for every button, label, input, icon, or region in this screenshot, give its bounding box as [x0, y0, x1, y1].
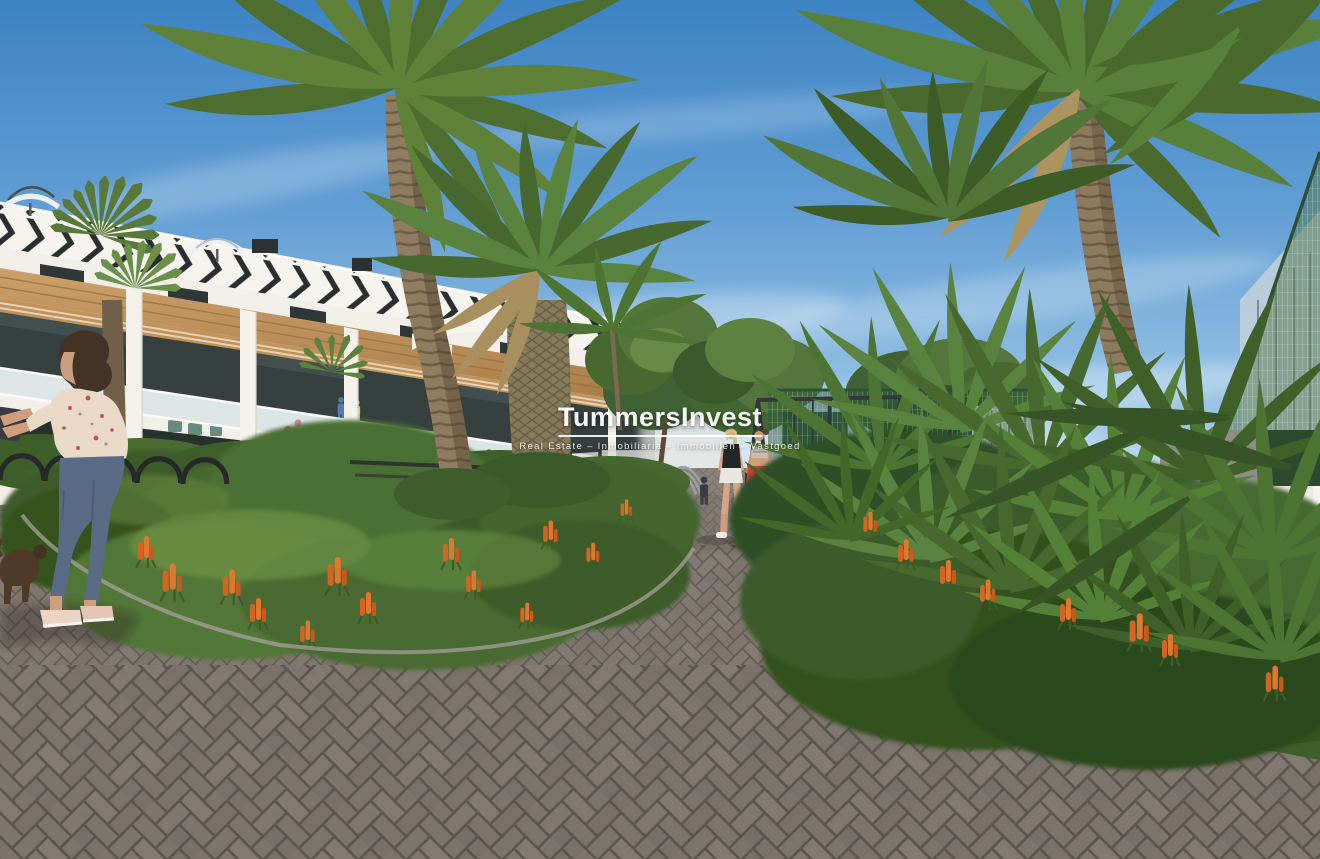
rendering-photo: TummersInvest Real Estate – Inmobiliaria… — [0, 0, 1320, 859]
